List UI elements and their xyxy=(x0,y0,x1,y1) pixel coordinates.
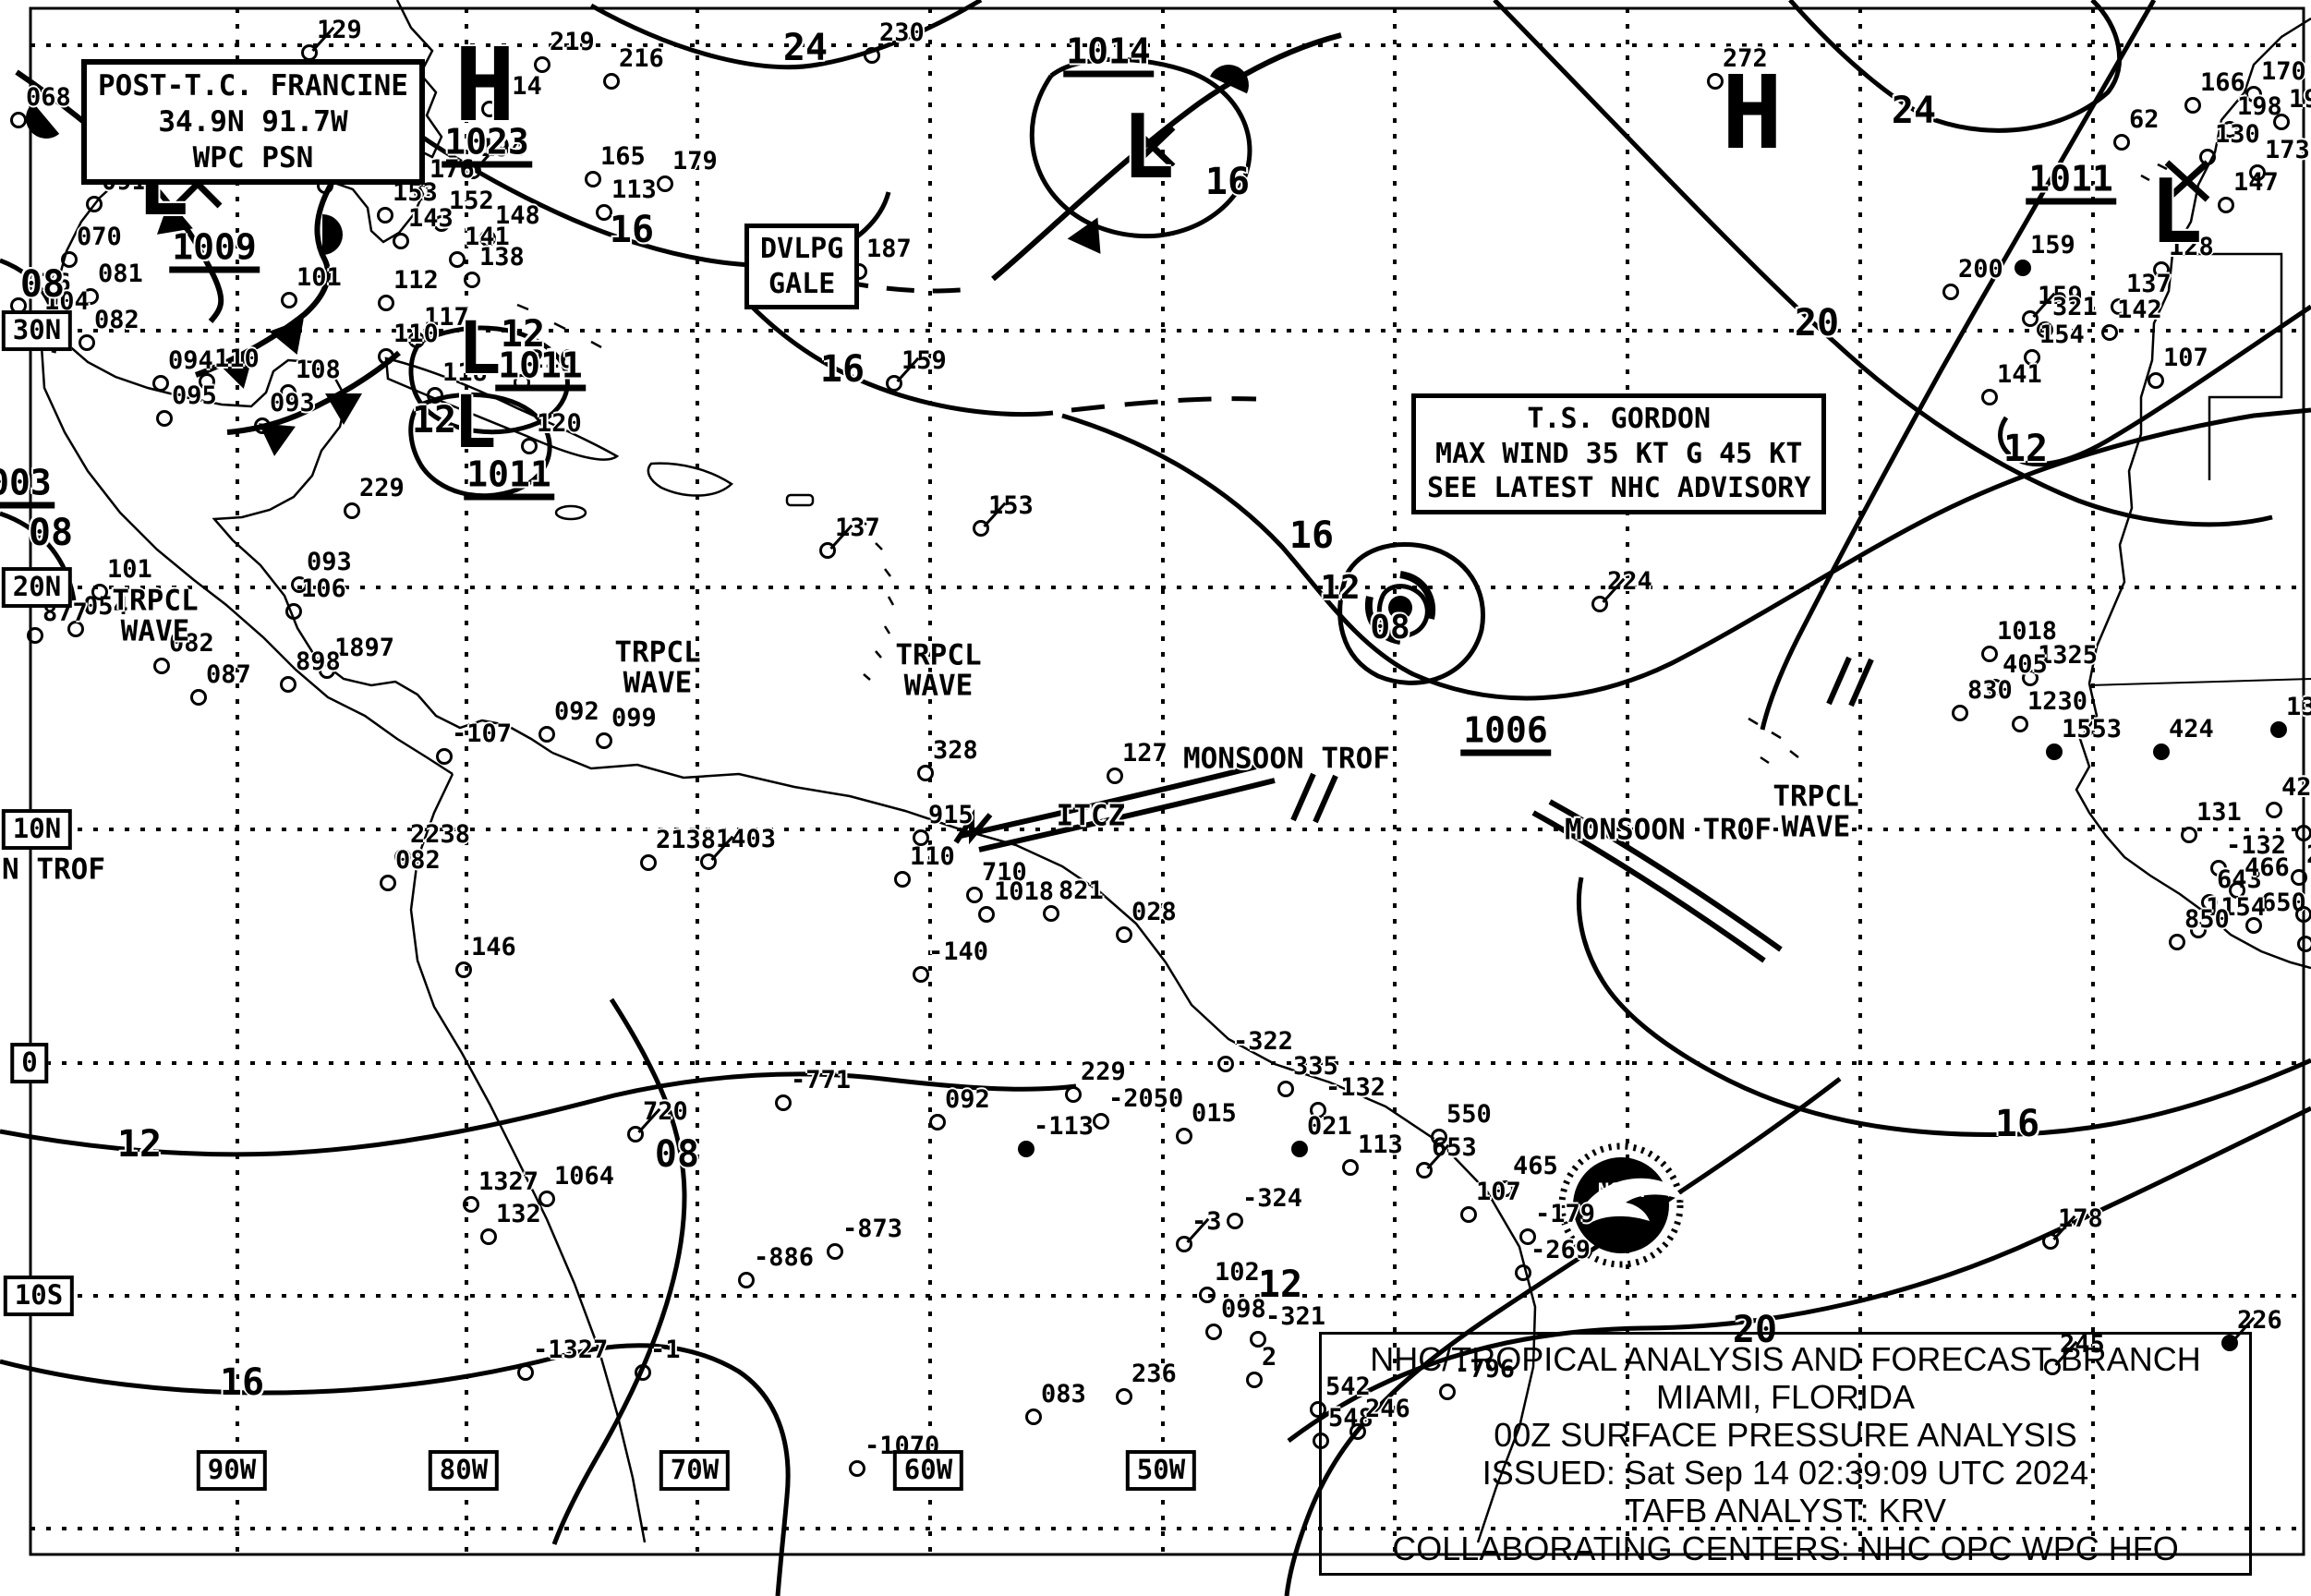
station-circle-icon xyxy=(2184,97,2201,114)
station-value: 424 xyxy=(2169,717,2214,742)
feature-label: N TROF xyxy=(2,854,105,885)
attribution-box: NHC/TROPICAL ANALYSIS AND FORECAST BRANC… xyxy=(1319,1332,2252,1576)
station-value: 082 xyxy=(94,308,139,332)
pressure-center-value: 1006 xyxy=(1460,713,1551,756)
station-circle-icon xyxy=(27,627,43,644)
pressure-center-value: 1011 xyxy=(464,457,554,501)
station-value: 1305 xyxy=(2286,695,2311,719)
station-value: 1018 xyxy=(1997,619,2057,644)
pressure-center-symbol: H xyxy=(454,44,515,126)
station-value: 229 xyxy=(359,476,405,501)
station-circle-icon xyxy=(1291,1141,1308,1157)
latitude-label: 0 xyxy=(10,1043,48,1083)
station-circle-icon xyxy=(377,207,393,224)
station-value: -113 xyxy=(1034,1114,1094,1139)
station-value: 166 xyxy=(2200,70,2245,95)
station-value: 081 xyxy=(98,261,143,286)
isobar-label: 24 xyxy=(1892,92,1936,129)
longitude-label: 60W xyxy=(893,1450,963,1491)
station-value: -1 xyxy=(650,1337,681,1362)
isobar-label: 16 xyxy=(610,212,654,248)
station-value: 146 xyxy=(471,935,516,960)
station-circle-icon xyxy=(2181,827,2197,843)
station-value: 159 xyxy=(901,348,947,373)
station-circle-icon xyxy=(913,966,929,983)
feature-label: ITCZ xyxy=(1057,801,1126,831)
station-value: 898 xyxy=(296,649,341,674)
station-circle-icon xyxy=(738,1272,755,1288)
station-circle-icon xyxy=(254,417,271,434)
station-circle-icon xyxy=(1107,768,1123,784)
dvlpg-gale-box: DVLPG GALE xyxy=(744,224,859,309)
pressure-center-symbol: L xyxy=(454,394,497,452)
station-value: -322 xyxy=(1233,1029,1293,1054)
station-circle-icon xyxy=(2249,164,2266,181)
station-circle-icon xyxy=(2113,134,2130,151)
station-circle-icon xyxy=(2153,744,2170,760)
station-value: 830 xyxy=(1967,678,2013,703)
station-circle-icon xyxy=(2101,324,2118,341)
station-circle-icon xyxy=(827,1243,843,1260)
station-value: 108 xyxy=(296,357,341,382)
station-value: 229 xyxy=(1081,1059,1126,1084)
station-circle-icon xyxy=(929,1114,946,1130)
station-circle-icon xyxy=(1942,284,1959,300)
isobar-label: 12 xyxy=(117,1126,162,1163)
station-circle-icon xyxy=(2148,372,2164,389)
station-circle-icon xyxy=(2022,310,2039,327)
station-circle-icon xyxy=(2218,197,2234,213)
station-value: 099 xyxy=(611,706,657,731)
isobar-label: 08 xyxy=(29,514,73,551)
isobar-label: 08 xyxy=(655,1136,699,1173)
station-value: 113 xyxy=(1358,1132,1403,1157)
grid-lines xyxy=(30,8,2304,1554)
station-value: 130 xyxy=(2215,122,2260,147)
station-value: 021 xyxy=(1307,1114,1352,1139)
attribution-line-1: NHC/TROPICAL ANALYSIS AND FORECAST BRANC… xyxy=(1333,1340,2238,1378)
station-value: 219 xyxy=(550,30,595,54)
station-value: 321 xyxy=(2052,295,2098,320)
station-value: 1403 xyxy=(716,827,776,852)
station-circle-icon xyxy=(1227,1213,1243,1229)
latitude-label: 20N xyxy=(2,567,72,608)
station-value: 2238 xyxy=(410,822,470,847)
station-circle-icon xyxy=(1277,1081,1294,1097)
station-value: 821 xyxy=(1059,878,1104,903)
station-value: 127 xyxy=(1122,741,1168,766)
station-value: 083 xyxy=(1041,1382,1086,1407)
station-value: 153 xyxy=(988,493,1034,518)
francine-line-3: WPC PSN xyxy=(98,140,408,176)
feature-label: TRPCL WAVE xyxy=(614,638,700,700)
station-circle-icon xyxy=(285,603,302,620)
gordon-line-1: T.S. GORDON xyxy=(1427,402,1810,437)
station-circle-icon xyxy=(2015,260,2031,276)
attribution-line-6: COLLABORATING CENTERS: NHC OPC WPC HFO xyxy=(1333,1529,2238,1567)
station-value: 095 xyxy=(172,383,217,408)
station-circle-icon xyxy=(455,961,472,978)
pressure-center-value: 1014 xyxy=(1063,34,1154,78)
station-value: 137 xyxy=(835,515,880,540)
isobar-label: 12 xyxy=(501,316,545,353)
station-value: 1327 xyxy=(478,1169,538,1194)
station-circle-icon xyxy=(966,887,983,903)
map-border xyxy=(30,8,2304,1554)
station-value: 132 xyxy=(496,1202,541,1227)
station-value: 850 xyxy=(2184,907,2230,932)
feature-label: MONSOON TROF xyxy=(1183,744,1390,774)
station-value: 200 xyxy=(1958,257,2003,282)
station-value: 165 xyxy=(600,144,646,169)
station-circle-icon xyxy=(480,1228,497,1245)
station-value: 178 xyxy=(2058,1206,2103,1231)
surface-analysis-chart: NOAA 30N20N10N010S 90W80W70W60W50W HLLLL… xyxy=(0,0,2311,1596)
station-value: 170 xyxy=(2261,59,2306,84)
ts-gordon-advisory-box: T.S. GORDON MAX WIND 35 KT G 45 KT SEE L… xyxy=(1411,393,1826,514)
station-circle-icon xyxy=(463,1196,479,1213)
station-circle-icon xyxy=(1416,1162,1433,1179)
isobar-label: 12 xyxy=(1320,572,1360,605)
station-circle-icon xyxy=(1952,705,1968,721)
isobar-label: 12 xyxy=(412,402,456,439)
francine-line-1: POST-T.C. FRANCINE xyxy=(98,68,408,104)
station-value: 1230 xyxy=(2027,689,2087,714)
station-value: 62 xyxy=(2129,107,2160,132)
isobar-label: 16 xyxy=(1205,163,1250,200)
feature-label: TRPCL WAVE xyxy=(895,641,981,703)
station-value: -2050 xyxy=(1108,1086,1183,1111)
station-value: 1897 xyxy=(334,635,394,660)
station-circle-icon xyxy=(913,829,929,846)
station-circle-icon xyxy=(973,520,989,537)
station-circle-icon xyxy=(917,765,934,781)
station-value: 112 xyxy=(393,268,439,293)
station-value: 187 xyxy=(866,236,912,261)
station-circle-icon xyxy=(190,689,207,706)
station-circle-icon xyxy=(2042,1233,2059,1250)
station-circle-icon xyxy=(1515,1264,1531,1281)
longitude-label: 50W xyxy=(1126,1450,1196,1491)
station-circle-icon xyxy=(603,73,620,90)
station-value: 420 xyxy=(2281,775,2311,800)
station-value: -107 xyxy=(452,721,512,746)
station-value: 230 xyxy=(879,20,925,45)
station-value: 141 xyxy=(1997,362,2042,387)
station-value: 028 xyxy=(1131,900,1177,925)
isobar-label: 08 xyxy=(20,266,65,303)
station-circle-icon xyxy=(640,854,657,871)
station-circle-icon xyxy=(819,542,836,559)
station-circle-icon xyxy=(886,375,902,392)
station-value: 138 xyxy=(479,245,525,270)
station-circle-icon xyxy=(1981,389,1998,405)
station-value: 173 xyxy=(2265,138,2310,163)
feature-label: MONSOON TROF xyxy=(1565,815,1772,845)
pressure-center-value: 1009 xyxy=(169,230,260,273)
station-value: 152 xyxy=(449,188,494,213)
station-circle-icon xyxy=(534,56,551,73)
longitude-label: 90W xyxy=(197,1450,267,1491)
station-value: 1018 xyxy=(994,879,1054,904)
station-circle-icon xyxy=(449,251,466,268)
station-value: 110 xyxy=(910,844,955,869)
station-circle-icon xyxy=(1981,646,1998,662)
station-circle-icon xyxy=(1065,1086,1082,1103)
station-circle-icon xyxy=(2273,114,2290,130)
latitude-label: 10S xyxy=(4,1276,74,1316)
station-circle-icon xyxy=(1199,1287,1216,1303)
station-value: 405 xyxy=(2002,652,2048,677)
station-circle-icon xyxy=(10,112,27,128)
pressure-center-symbol: L xyxy=(2149,177,2202,248)
station-value: 113 xyxy=(611,177,657,202)
station-value: 120 xyxy=(537,411,582,436)
isobar-label: 12 xyxy=(2003,430,2048,467)
station-value: 550 xyxy=(1446,1102,1492,1127)
station-circle-icon xyxy=(521,438,538,454)
station-circle-icon xyxy=(2169,934,2185,950)
station-circle-icon xyxy=(2266,802,2282,818)
gale-line-2: GALE xyxy=(760,267,843,302)
attribution-line-5: TAFB ANALYST: KRV xyxy=(1333,1492,2238,1529)
isobar-label: 08 xyxy=(1370,611,1410,645)
station-value: 465 xyxy=(1513,1154,1558,1179)
station-value: 015 xyxy=(1192,1101,1237,1126)
station-circle-icon xyxy=(1025,1409,1042,1425)
station-value: 129 xyxy=(317,18,362,42)
station-value: 082 xyxy=(395,848,441,873)
station-value: 179 xyxy=(672,149,718,174)
station-circle-icon xyxy=(280,676,296,693)
station-circle-icon xyxy=(2295,825,2311,841)
station-value: 915 xyxy=(928,803,974,828)
station-value: -886 xyxy=(754,1245,814,1270)
station-value: 142 xyxy=(2117,297,2162,322)
station-value: 068 xyxy=(26,85,71,110)
station-value: 101 xyxy=(296,265,342,290)
pressure-center-symbol: L xyxy=(1121,113,1174,183)
noaa-logo-text: NOAA xyxy=(1598,1179,1645,1202)
station-circle-icon xyxy=(635,1364,651,1381)
station-circle-icon xyxy=(538,726,555,743)
station-value: -321 xyxy=(1265,1304,1325,1329)
station-circle-icon xyxy=(596,732,612,749)
station-circle-icon xyxy=(436,748,453,765)
station-value: 093 xyxy=(270,391,315,416)
station-circle-icon xyxy=(281,292,297,308)
pressure-center-value: 1011 xyxy=(2026,162,2116,205)
station-value: -269 xyxy=(1531,1238,1591,1263)
station-circle-icon xyxy=(1116,1388,1132,1405)
station-circle-icon xyxy=(2295,906,2311,923)
station-value: 094 xyxy=(168,348,213,373)
station-value: 234 xyxy=(2306,842,2311,867)
station-circle-icon xyxy=(79,334,95,351)
station-circle-icon xyxy=(464,272,480,288)
station-value: 087 xyxy=(206,662,251,687)
station-circle-icon xyxy=(380,875,396,891)
station-value: 720 xyxy=(643,1099,688,1124)
station-value: 093 xyxy=(307,550,352,574)
station-value: -179 xyxy=(1535,1202,1595,1227)
station-circle-icon xyxy=(1116,926,1132,943)
francine-line-2: 34.9N 91.7W xyxy=(98,104,408,140)
station-circle-icon xyxy=(517,1364,534,1381)
station-circle-icon xyxy=(1018,1141,1035,1157)
station-circle-icon xyxy=(1591,596,1608,612)
station-circle-icon xyxy=(1217,1056,1234,1072)
longitude-label: 80W xyxy=(429,1450,499,1491)
station-value: 154 xyxy=(2039,322,2085,347)
station-circle-icon xyxy=(1205,1324,1222,1340)
attribution-line-3: 00Z SURFACE PRESSURE ANALYSIS xyxy=(1333,1416,2238,1454)
station-value: 236 xyxy=(1131,1361,1177,1386)
station-circle-icon xyxy=(1246,1372,1263,1388)
station-value: 328 xyxy=(933,738,978,763)
station-value: 2138 xyxy=(656,828,716,852)
isobar-label: 16 xyxy=(220,1364,264,1401)
station-circle-icon xyxy=(152,375,169,392)
station-value: 466 xyxy=(2244,855,2290,880)
station-circle-icon xyxy=(378,348,394,365)
gordon-line-3: SEE LATEST NHC ADVISORY xyxy=(1427,471,1810,506)
cold-front-triangle xyxy=(1068,218,1116,265)
station-value: 110 xyxy=(214,346,260,371)
monsoon-trough-lines xyxy=(961,767,1781,961)
station-value: 110 xyxy=(393,321,439,346)
station-value: -1327 xyxy=(533,1337,608,1362)
station-value: 137 xyxy=(2126,272,2172,296)
station-circle-icon xyxy=(657,175,673,192)
station-value: 131 xyxy=(2196,800,2242,825)
station-circle-icon xyxy=(775,1094,792,1111)
station-circle-icon xyxy=(2012,716,2028,732)
station-circle-icon xyxy=(849,1460,865,1477)
station-value: -132 xyxy=(1325,1075,1385,1100)
station-value: 107 xyxy=(1476,1179,1521,1204)
station-circle-icon xyxy=(1043,905,1059,922)
attribution-line-4: ISSUED: Sat Sep 14 02:39:09 UTC 2024 xyxy=(1333,1454,2238,1492)
latitude-label: 10N xyxy=(2,809,72,850)
station-circle-icon xyxy=(1093,1113,1109,1130)
pressure-center-value: 1003 xyxy=(0,465,54,509)
station-value: -140 xyxy=(928,939,988,964)
station-value: 102 xyxy=(1215,1260,1260,1285)
station-value: 070 xyxy=(77,224,122,249)
feature-label: TRPCL WAVE xyxy=(1773,782,1858,844)
station-value: -873 xyxy=(842,1216,902,1241)
longitude-label: 70W xyxy=(659,1450,730,1491)
station-value: -324 xyxy=(1242,1186,1302,1211)
station-value: 101 xyxy=(107,557,152,582)
isobar-label: 16 xyxy=(1289,517,1334,554)
station-circle-icon xyxy=(700,853,717,870)
station-value: 196 xyxy=(2289,87,2311,112)
station-value: 092 xyxy=(554,699,599,724)
station-circle-icon xyxy=(393,233,409,249)
station-value: 092 xyxy=(945,1087,990,1112)
station-circle-icon xyxy=(864,47,880,64)
station-circle-icon xyxy=(894,871,911,888)
isobar-label: 20 xyxy=(1795,305,1839,342)
station-value: 107 xyxy=(2163,345,2208,370)
post-tc-francine-box: POST-T.C. FRANCINE 34.9N 91.7W WPC PSN xyxy=(81,59,425,185)
station-circle-icon xyxy=(156,410,173,427)
station-circle-icon xyxy=(378,295,394,311)
station-circle-icon xyxy=(1176,1128,1192,1144)
station-circle-icon xyxy=(86,196,103,212)
station-value: 1064 xyxy=(554,1164,614,1189)
isobar-label: 16 xyxy=(1995,1106,2039,1143)
gale-line-1: DVLPG xyxy=(760,232,843,267)
latitude-label: 30N xyxy=(2,310,72,351)
station-value: 1553 xyxy=(2062,717,2122,742)
attribution-line-2: MIAMI, FLORIDA xyxy=(1333,1378,2238,1416)
station-value: 224 xyxy=(1607,569,1652,594)
station-circle-icon xyxy=(585,171,601,187)
station-value: 2 xyxy=(1262,1345,1276,1370)
station-circle-icon xyxy=(1460,1206,1477,1223)
station-circle-icon xyxy=(153,658,170,674)
station-value: -771 xyxy=(791,1068,851,1093)
station-circle-icon xyxy=(1176,1236,1192,1252)
station-value: 216 xyxy=(619,46,664,71)
station-circle-icon xyxy=(2046,744,2063,760)
gordon-line-2: MAX WIND 35 KT G 45 KT xyxy=(1427,437,1810,472)
isobar-label: 24 xyxy=(783,30,828,66)
station-value: 226 xyxy=(2237,1308,2282,1333)
station-value: 143 xyxy=(408,206,454,231)
isobar-label: 12 xyxy=(1258,1266,1302,1303)
station-circle-icon xyxy=(1342,1159,1359,1176)
station-circle-icon xyxy=(978,906,995,923)
pressure-center-symbol: H xyxy=(1722,72,1783,153)
station-value: 159 xyxy=(2030,233,2075,258)
station-circle-icon xyxy=(1431,1129,1447,1145)
station-circle-icon xyxy=(2291,869,2307,886)
station-circle-icon xyxy=(91,584,108,600)
isobar-label: 16 xyxy=(820,351,865,388)
station-circle-icon xyxy=(2270,721,2287,738)
station-circle-icon xyxy=(344,502,360,519)
station-circle-icon xyxy=(2297,936,2311,952)
station-circle-icon xyxy=(627,1126,644,1143)
feature-label: TRPCL WAVE xyxy=(112,586,198,648)
station-value: -3 xyxy=(1192,1209,1222,1234)
station-value: 106 xyxy=(301,576,346,601)
pressure-center-value: 1023 xyxy=(442,125,532,168)
